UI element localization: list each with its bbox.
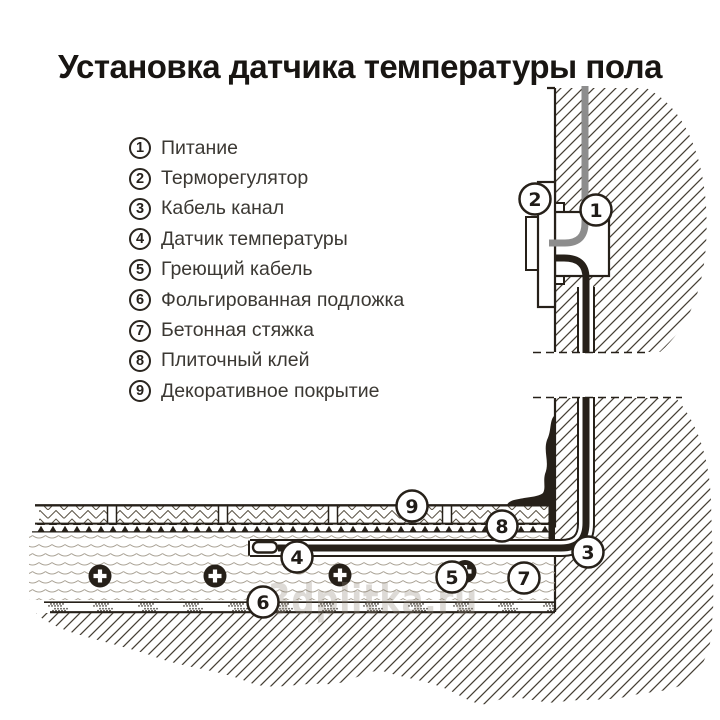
subfloor-hatch [36,613,712,704]
callout-1: 1 [581,195,612,226]
callout-5: 5 [437,562,468,593]
adhesive-layer [36,524,553,532]
callout-9: 9 [397,491,428,522]
callout-7: 7 [509,563,540,594]
callout-6: 6 [248,587,279,618]
svg-text:5: 5 [445,567,458,589]
callout-8: 8 [487,511,518,542]
svg-text:8: 8 [495,516,508,538]
svg-text:6: 6 [256,592,269,614]
svg-text:4: 4 [290,547,303,569]
callout-3: 3 [573,537,604,568]
svg-text:7: 7 [517,568,530,590]
cable-cross-icon [89,565,112,588]
svg-text:2: 2 [528,189,541,211]
wall-break [524,353,716,398]
callout-4: 4 [282,542,313,573]
callout-2: 2 [520,184,551,215]
svg-text:1: 1 [589,200,602,222]
page: { "title": "Установка датчика температур… [0,0,720,720]
diagram-canvas: 3dplitka.ru 1 2 3 4 5 6 7 8 9 [0,0,720,720]
svg-text:9: 9 [405,496,418,518]
svg-text:3: 3 [581,542,594,564]
cable-cross-icon [204,565,227,588]
